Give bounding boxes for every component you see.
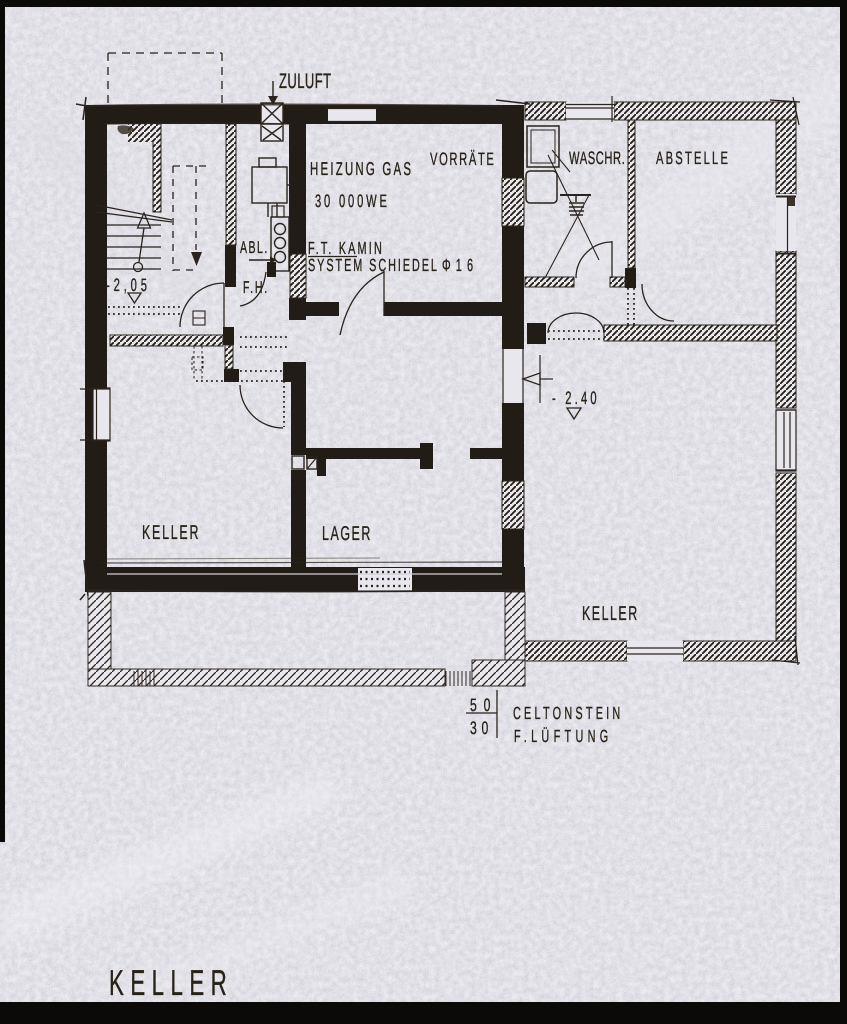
svg-text:Φ16: Φ16 (442, 255, 473, 275)
svg-text:- 2.40: - 2.40 (552, 388, 597, 408)
svg-text:SYSTEM SCHIEDEL: SYSTEM SCHIEDEL (308, 255, 437, 275)
svg-text:VORRÄTE: VORRÄTE (430, 149, 494, 169)
svg-text:HEIZUNG GAS: HEIZUNG GAS (310, 158, 411, 179)
svg-text:WASCHR.: WASCHR. (569, 148, 625, 168)
svg-text:30 000WE: 30 000WE (315, 191, 387, 211)
svg-text:ZULUFT: ZULUFT (279, 70, 331, 93)
